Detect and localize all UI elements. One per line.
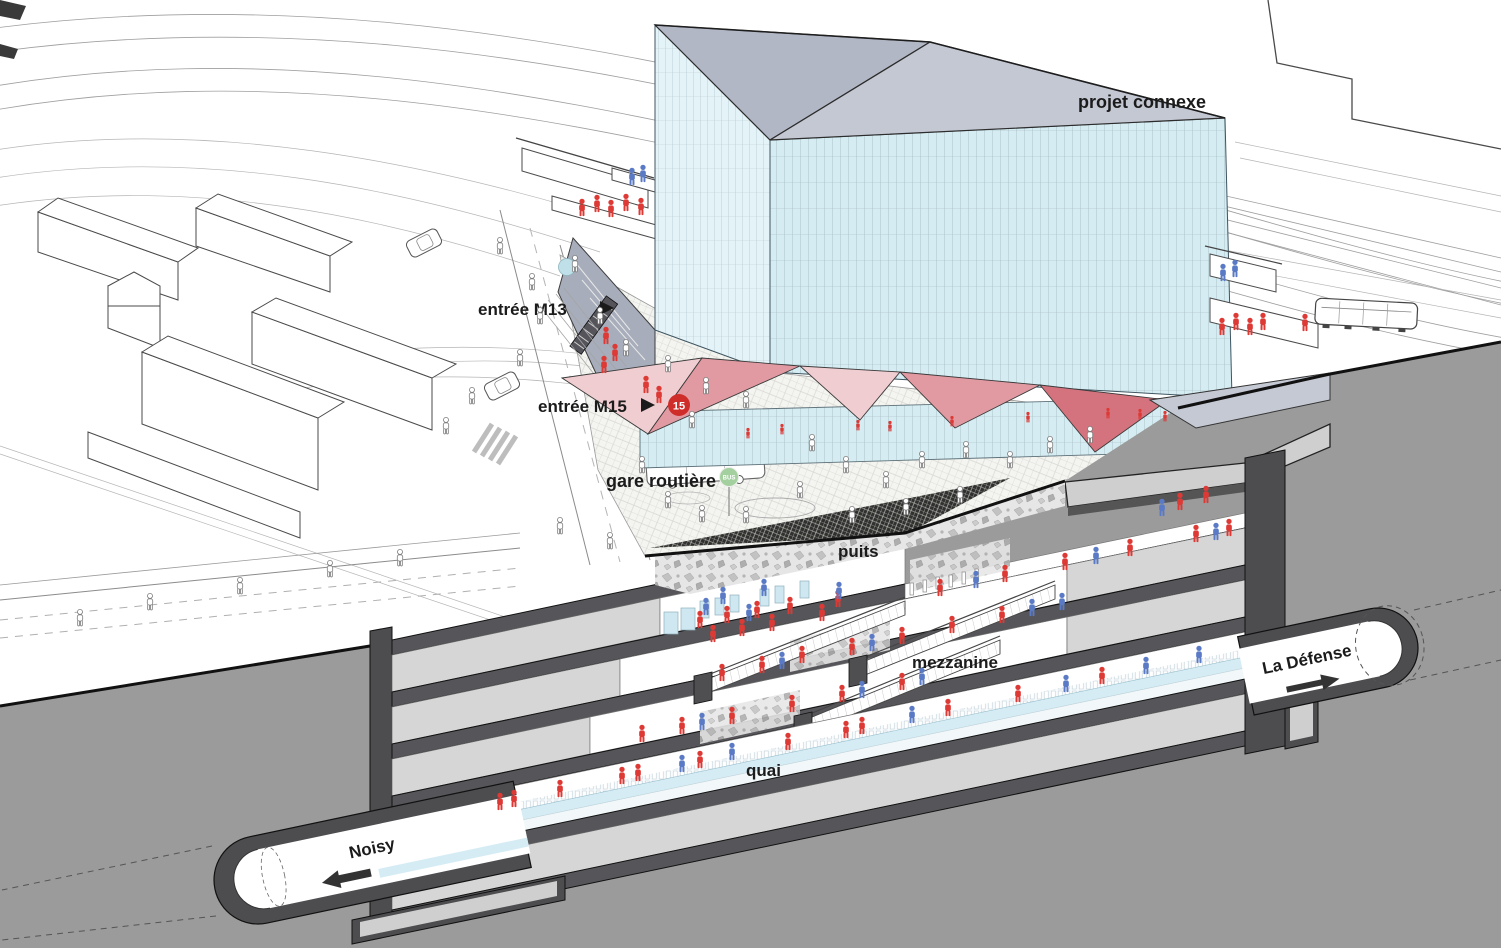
line-15-badge-label: 15 [673, 401, 685, 413]
label-quai: quai [746, 761, 781, 780]
illustration-stage: BUS [0, 0, 1501, 948]
label-entree-m15: entrée M15 [538, 397, 627, 416]
label-mezzanine: mezzanine [912, 653, 998, 672]
bus-badge-label: BUS [723, 476, 736, 482]
label-gare-routiere: gare routière [606, 471, 716, 491]
label-puits: puits [838, 542, 879, 561]
label-projet-connexe: projet connexe [1078, 92, 1206, 112]
station-section-diagram: BUS [0, 0, 1501, 948]
label-entree-m13: entrée M13 [478, 300, 567, 319]
